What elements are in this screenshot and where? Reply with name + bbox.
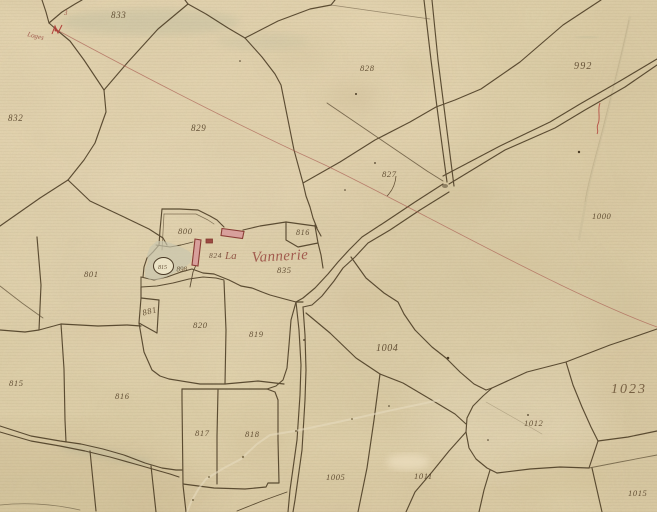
svg-text:816: 816	[115, 391, 130, 401]
svg-text:992: 992	[574, 61, 593, 72]
svg-text:1000: 1000	[592, 211, 612, 221]
svg-text:832: 832	[8, 113, 23, 123]
svg-text:1023: 1023	[611, 382, 647, 397]
svg-text:820: 820	[193, 320, 208, 330]
svg-text:819: 819	[249, 329, 264, 339]
svg-text:800: 800	[178, 226, 193, 236]
svg-text:833: 833	[111, 10, 126, 20]
svg-text:Vannerie: Vannerie	[251, 247, 308, 266]
svg-text:828: 828	[360, 63, 375, 73]
svg-text:3: 3	[63, 9, 68, 17]
svg-text:1005: 1005	[326, 472, 345, 482]
svg-text:817: 817	[195, 428, 210, 438]
svg-text:1015: 1015	[628, 488, 647, 498]
svg-text:818: 818	[245, 429, 260, 439]
svg-text:816: 816	[296, 228, 310, 237]
svg-text:1012: 1012	[524, 418, 544, 428]
svg-text:La: La	[224, 250, 237, 262]
svg-text:1004: 1004	[376, 343, 398, 354]
svg-text:898: 898	[177, 266, 188, 274]
svg-text:801: 801	[84, 269, 99, 279]
svg-text:827: 827	[382, 169, 397, 179]
svg-text:829: 829	[191, 123, 206, 133]
svg-text:835: 835	[277, 265, 292, 275]
svg-text:1011: 1011	[414, 471, 433, 481]
svg-text:815: 815	[9, 378, 24, 388]
svg-text:824: 824	[209, 251, 222, 260]
svg-text:815: 815	[158, 265, 167, 271]
